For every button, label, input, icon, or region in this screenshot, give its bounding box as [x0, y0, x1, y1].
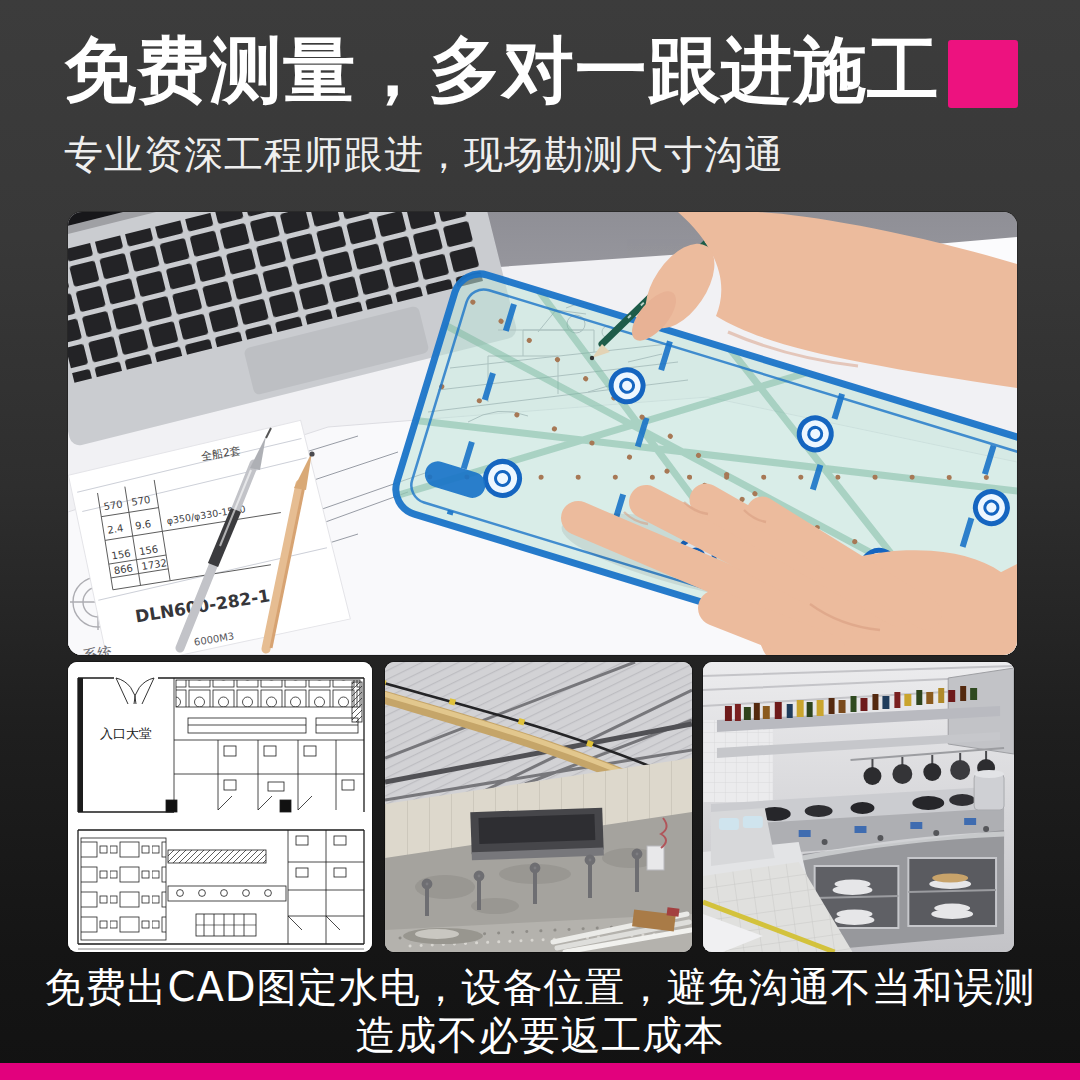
hero-photo-drafting: 全船2套 570 570 2.4 9.6 156 156 866 1732 φ3… — [68, 212, 1017, 655]
electrical-box — [647, 846, 664, 870]
gallery-photo-construction-site — [385, 662, 692, 952]
commercial-kitchen-illustration — [703, 662, 1014, 952]
gallery-photo-commercial-kitchen — [703, 662, 1014, 952]
entrance-hall-label: 入口大堂 — [100, 726, 152, 741]
page-subtitle: 专业资深工程师跟进，现场勘测尺寸沟通 — [64, 128, 964, 182]
bottom-accent-bar — [0, 1063, 1080, 1080]
tiled-wall — [703, 720, 773, 802]
accent-square — [948, 40, 1018, 108]
serving-hatch — [470, 808, 604, 861]
construction-site-illustration — [385, 662, 692, 952]
gallery-photo-cad-floor-plan: 入口大堂 — [68, 662, 372, 952]
floor-plan-illustration: 入口大堂 — [68, 662, 372, 952]
footer-caption-line2: 造成不必要返工成本 — [0, 1008, 1080, 1063]
hero-photo-illustration: 全船2套 570 570 2.4 9.6 156 156 866 1732 φ3… — [68, 212, 1017, 655]
page-title: 免费测量，多对一跟进施工 — [64, 30, 944, 111]
promo-panel: 免费测量，多对一跟进施工 专业资深工程师跟进，现场勘测尺寸沟通 — [0, 0, 1080, 1080]
footer-caption-line1: 免费出CAD图定水电，设备位置，避免沟通不当和误测 — [0, 960, 1080, 1015]
